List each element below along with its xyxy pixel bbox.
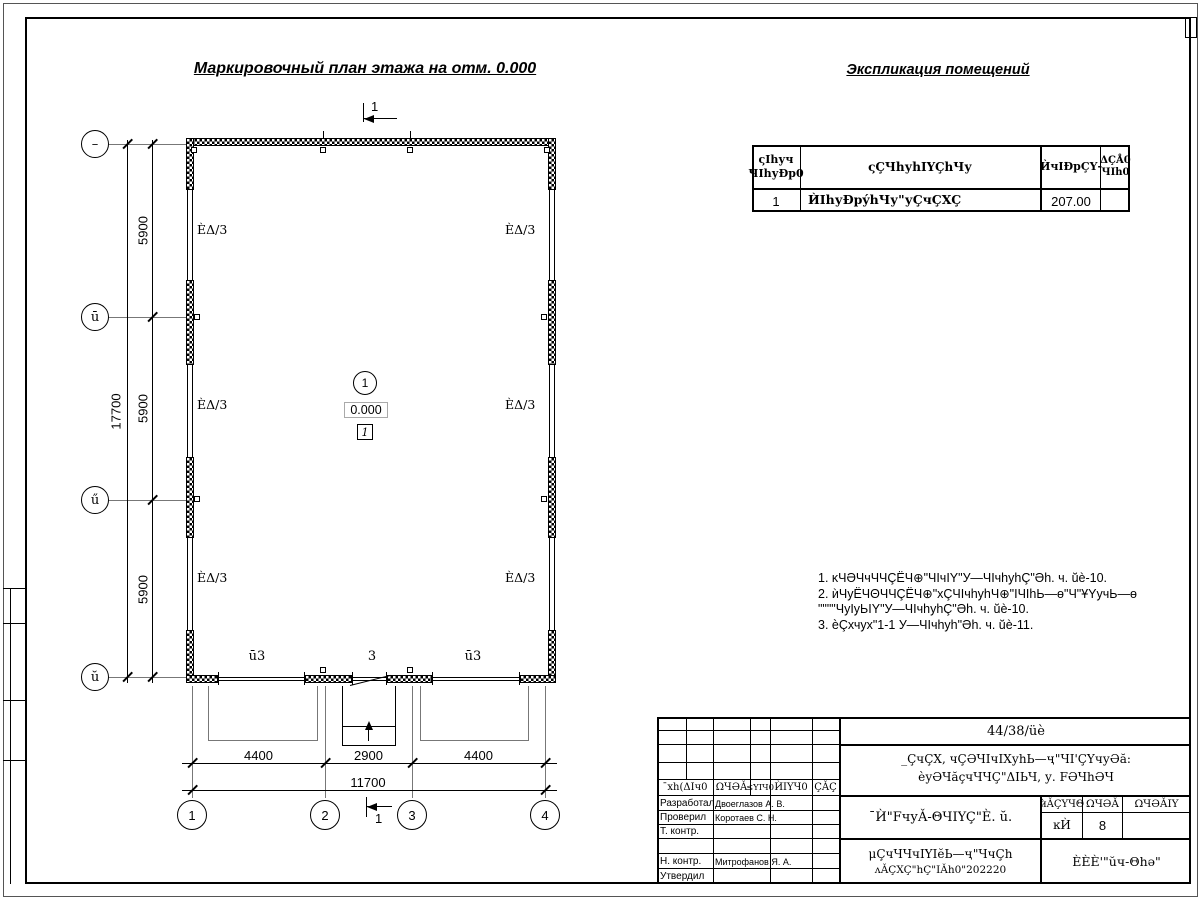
margin-divider-h3 <box>3 700 25 701</box>
tb-role-label: Проверил <box>660 812 706 823</box>
grid-bubble-row: ű <box>81 486 109 514</box>
wall-bottom-seg2 <box>305 675 352 683</box>
explication-header-area: ЍчIÐрÇҮ- <box>1042 145 1100 188</box>
grid-bubble-col: 1 <box>177 800 207 830</box>
doc-number: 44/38/üè <box>841 722 1191 740</box>
tb-col-list: ≤YIЧ0 <box>750 780 770 795</box>
tb-stage-header: ѝǍÇYЧΘ <box>1042 796 1082 812</box>
explication-cell-note <box>1101 190 1130 212</box>
wall-bottom-seg3 <box>387 675 432 683</box>
column-mark <box>194 496 200 502</box>
column-mark <box>191 147 197 153</box>
tb-col-ndok: ЍIYЧ0 <box>770 780 812 795</box>
wall-mark-label: ÈΔ/3 <box>197 570 227 585</box>
corner-cell <box>1185 17 1197 38</box>
tb-sheet-value: 8 <box>1083 813 1122 837</box>
note-line: 3. ѐÇхчух"1-1 У—ЧIчhуh"Әh. ч. ŭè-11. <box>818 618 1033 632</box>
elevation-label: 0.000 <box>344 402 388 418</box>
tb-col-izm: ¯хh(ΔIч0 <box>657 780 713 795</box>
wall-top <box>186 138 556 146</box>
tb-sheets-header: ΩЧӘǍIY <box>1123 796 1190 812</box>
grid-extension <box>192 686 193 798</box>
margin-divider-h4 <box>3 760 25 761</box>
note-line: 2. ѝЧуЁЧΘЧЧÇЁЧ⊕"хÇЧIчhуhЧ⊕"IЧIhЬ—ө"Ч"ҰYу… <box>818 586 1137 601</box>
grid-bubble-row: – <box>81 130 109 158</box>
column-mark <box>541 314 547 320</box>
section-number: 1 <box>375 811 382 826</box>
grid-extension <box>109 317 186 318</box>
column-mark <box>320 147 326 153</box>
axis-notch <box>323 131 324 138</box>
explication-header-num: ςIhуч ЧIhуÐр0 <box>753 150 799 184</box>
tb-line <box>657 762 839 763</box>
window-opening <box>549 190 555 280</box>
explication-header-name: ςÇЧhуhIYÇhЧу <box>801 145 1039 188</box>
jamb-tick <box>218 672 219 685</box>
window-opening <box>187 365 193 457</box>
entry-pit-side <box>395 686 396 746</box>
grid-extension <box>109 677 186 678</box>
header-text: ЧIhуÐр0 <box>748 167 803 181</box>
column-mark <box>407 147 413 153</box>
tb-role-name: Митрофанов Я. А. <box>715 857 791 867</box>
tb-line <box>657 810 839 811</box>
grid-bubble-col: 2 <box>310 800 340 830</box>
header-text: ЧIh0 <box>1101 167 1129 180</box>
tb-line <box>812 717 813 884</box>
wall-right-seg3 <box>548 457 556 538</box>
opening-label-left: ū3 <box>242 649 272 664</box>
tb-line <box>657 795 839 796</box>
window-opening <box>549 365 555 457</box>
dim-value: 5900 <box>137 570 150 610</box>
grid-col-label: 4 <box>541 808 548 823</box>
grid-col-label: 1 <box>188 808 195 823</box>
wall-right-seg2 <box>548 280 556 365</box>
column-mark <box>320 667 326 673</box>
note-line: 1. ĸЧӘЧчЧЧÇЁЧ⊕"ЧIчIY"У—ЧIчhуhÇ"Әh. ч. ŭè… <box>818 570 1107 585</box>
grid-col-label: 3 <box>408 808 415 823</box>
entry-pit-bottom <box>342 745 396 746</box>
grid-extension <box>545 686 546 798</box>
project-name-line1: _ÇчÇX, чÇӘЧIчIXуhЬ—ҷ"ЧI'ÇҮчуӘă: <box>845 751 1187 766</box>
grid-row-label: ű <box>91 493 99 508</box>
jamb-tick <box>519 672 520 685</box>
dim-line-left-segments <box>152 140 153 683</box>
jamb-tick <box>304 672 305 685</box>
explication-cell-name: ЍIhуÐрýhЧу"уÇчÇXÇ <box>808 192 961 207</box>
ramp-left-edge <box>208 740 318 741</box>
header-text: ςIhуч <box>759 153 794 167</box>
tb-col-podp: ÇǍÇ <box>812 780 839 795</box>
room-number: 1 <box>362 376 369 390</box>
tb-line <box>841 744 1191 746</box>
project-name-line2: ѐуӘЧăçчЧЧÇ"ΔIЬЧ, у. FӘЧhӘЧ <box>845 769 1187 784</box>
tb-role-label: Н. контр. <box>660 856 701 867</box>
ramp-right-side <box>420 686 421 741</box>
gate-opening-right <box>432 677 520 681</box>
opening-label-right: ū3 <box>458 649 488 664</box>
tb-sheets-value <box>1123 813 1190 837</box>
opening-label-middle: 3 <box>362 649 382 664</box>
section-arrow-icon <box>364 115 374 123</box>
margin-divider-h2 <box>3 623 25 624</box>
wall-left-seg2 <box>186 280 194 365</box>
grid-bubble-row: ū <box>81 303 109 331</box>
dim-line-left-total <box>127 140 128 683</box>
entry-arrow-icon <box>365 721 373 730</box>
grid-row-label: – <box>92 137 99 152</box>
wall-mark-label: ÈΔ/3 <box>197 397 227 412</box>
grid-bubble-col: 4 <box>530 800 560 830</box>
plan-title: Маркировочный план этажа на отм. 0.000 <box>190 60 540 78</box>
window-opening <box>187 190 193 280</box>
section-number: 1 <box>371 99 378 114</box>
tb-org-line2: ʌǍÇXÇ"hÇ"IǍh0"202220 <box>841 863 1040 876</box>
room-number-bubble: 1 <box>353 371 377 395</box>
tb-org-line1: μÇчЧЧчIYIĕЬ—ҷ"ЧчÇh <box>841 846 1040 861</box>
dim-value: 2900 <box>346 748 391 763</box>
column-mark <box>407 667 413 673</box>
explication-cell-num: 1 <box>753 190 799 212</box>
tb-sheet-title: ¯Ѝ"FчуǍ-ΘЧIYÇ"Ѐ. ŭ. <box>841 797 1040 838</box>
tb-line <box>657 730 839 731</box>
grid-bubble-row: ŭ <box>81 663 109 691</box>
dim-value: 5900 <box>137 211 150 251</box>
explication-cell-area: 207.00 <box>1042 190 1100 212</box>
explication-header-note: ΔÇÅ0 ЧIh0 <box>1101 150 1130 184</box>
tb-line <box>657 824 839 825</box>
explication-title: Экспликация помещений <box>838 62 1038 78</box>
ramp-right-side <box>528 686 529 741</box>
tb-role-label: Утвердил <box>660 871 704 882</box>
grid-col-label: 2 <box>321 808 328 823</box>
wall-mark-label: ÈΔ/3 <box>197 222 227 237</box>
wall-right-seg1 <box>548 138 556 190</box>
grid-row-label: ŭ <box>91 670 99 685</box>
dim-value: 5900 <box>137 389 150 429</box>
wall-mark-label: ÈΔ/3 <box>505 397 535 412</box>
tb-line <box>657 853 839 854</box>
grid-extension <box>109 144 186 145</box>
floor-type-mark: 1 <box>357 424 373 440</box>
tb-line <box>686 717 687 779</box>
header-text: ΔÇÅ0 <box>1100 155 1130 168</box>
dim-line-bottom-total <box>182 790 557 791</box>
dim-value: 4400 <box>236 748 281 763</box>
column-mark <box>194 314 200 320</box>
margin-divider-v <box>10 588 11 884</box>
tb-role-label: Разработал <box>660 798 714 809</box>
wall-left-seg1 <box>186 138 194 190</box>
column-mark <box>544 147 550 153</box>
ramp-left-side <box>317 686 318 741</box>
jamb-tick <box>432 672 433 685</box>
tb-role-label: Т. контр. <box>660 826 699 837</box>
ramp-right-edge <box>420 740 529 741</box>
tb-company: ÈÈÈ'"ŭч-Θhә" <box>1042 838 1191 884</box>
grid-extension <box>325 686 326 798</box>
grid-extension <box>109 500 186 501</box>
wall-bottom-seg4 <box>520 675 556 683</box>
wall-left-seg3 <box>186 457 194 538</box>
grid-bubble-col: 3 <box>397 800 427 830</box>
jamb-tick <box>386 672 387 685</box>
grid-row-label: ū <box>91 310 99 325</box>
dim-line-bottom-segments <box>182 763 557 764</box>
ramp-left-side <box>208 686 209 741</box>
tb-line <box>657 868 839 869</box>
window-opening <box>187 538 193 630</box>
tb-stage-value: ĸЍ <box>1042 813 1082 837</box>
dim-value: 4400 <box>456 748 501 763</box>
tb-line <box>657 744 839 745</box>
wall-bottom-seg1 <box>186 675 218 683</box>
window-opening <box>549 538 555 630</box>
section-arrow-icon <box>367 803 377 811</box>
wall-mark-label: ÈΔ/3 <box>505 222 535 237</box>
wall-mark-label: ÈΔ/3 <box>505 570 535 585</box>
column-mark <box>541 496 547 502</box>
tb-role-name: Двоеглазов А. В. <box>715 799 785 809</box>
axis-notch <box>410 131 411 138</box>
grid-extension <box>412 686 413 798</box>
gate-opening-left <box>218 677 305 681</box>
entry-pit-side <box>342 686 343 746</box>
tb-role-name: Коротаев С. Н. <box>715 813 777 823</box>
note-line: """"ЧуIуЬIY"У—ЧIчhуhÇ"Әh. ч. ŭè-10. <box>818 602 1029 616</box>
tb-line <box>657 838 839 839</box>
tb-sheet-header: ΩЧӘǍ <box>1083 796 1122 812</box>
dim-value-total: 17700 <box>110 389 123 435</box>
margin-divider-h1 <box>3 588 25 589</box>
tb-col-kol: ΩЧӘǍ <box>713 780 750 795</box>
dim-value-total: 11700 <box>338 775 398 790</box>
